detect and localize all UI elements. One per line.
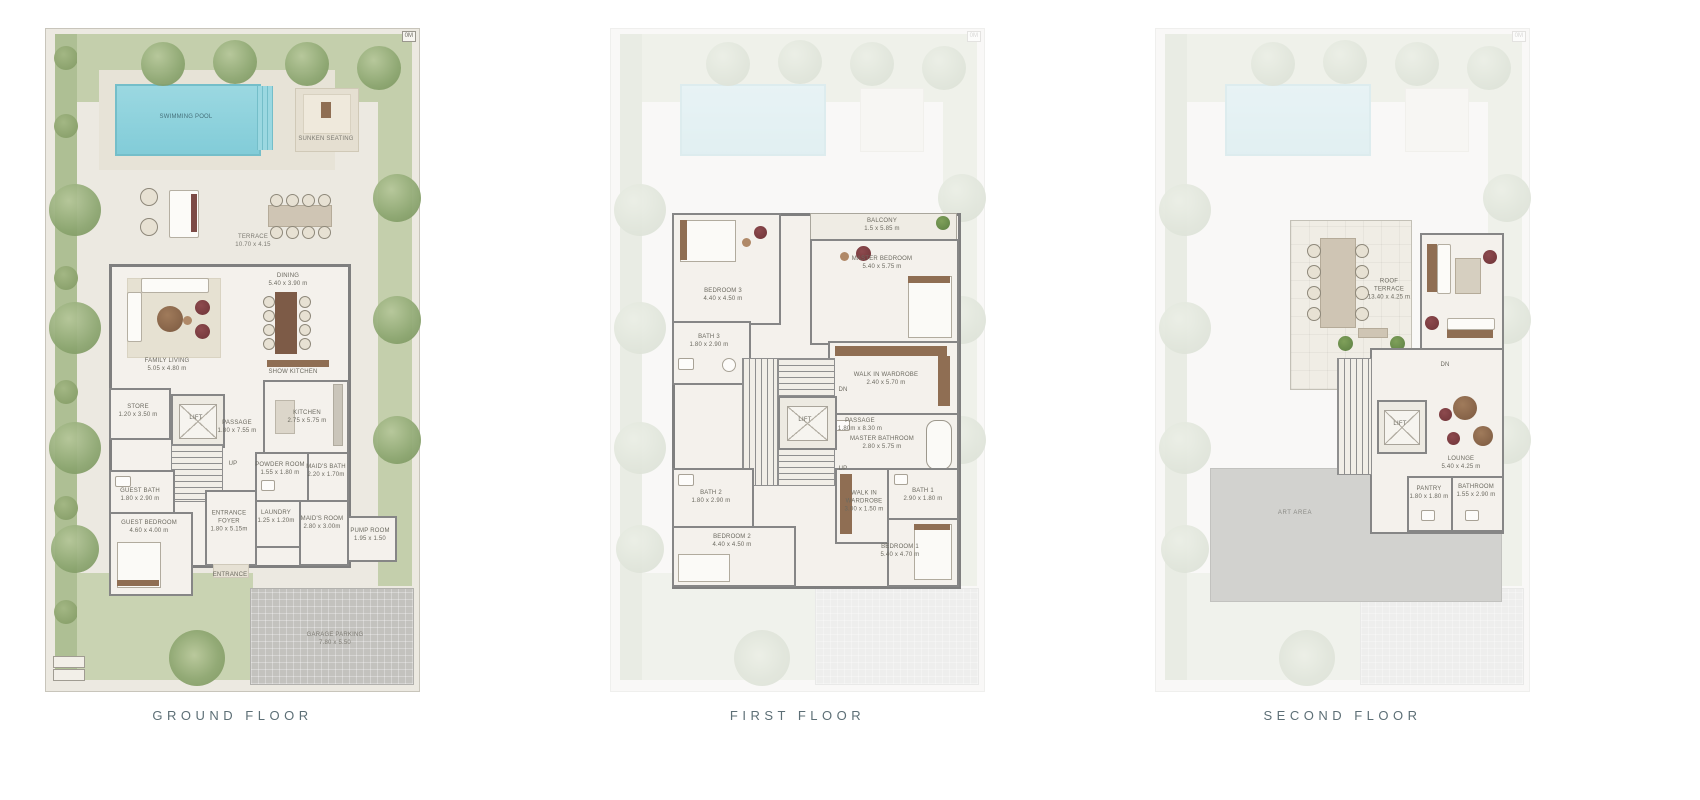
chair-icon: [263, 338, 275, 350]
up-label: UP: [229, 461, 238, 469]
tree-icon: [778, 40, 822, 84]
dining-label: DINING5.40 x 3.90 m: [269, 273, 308, 289]
terrace-table-icon: [268, 205, 332, 227]
garage-area: [1360, 588, 1524, 685]
chair-icon: [1355, 307, 1369, 321]
lift-label: LIFT: [1393, 421, 1406, 429]
garage-area: [815, 588, 979, 685]
fixture-icon: [261, 480, 275, 491]
stairs-icon: [778, 448, 835, 486]
garage-label: GARAGE PARKING7.80 x 5.50: [307, 632, 364, 648]
sofa-cushion-icon: [191, 194, 197, 232]
chair-icon: [1355, 265, 1369, 279]
chair-icon: [1307, 286, 1321, 300]
lift-label: LIFT: [189, 415, 202, 423]
palm-tree-icon: [1279, 630, 1335, 686]
tree-icon: [850, 42, 894, 86]
armchair-icon: [754, 226, 767, 239]
firepit-icon: [321, 102, 331, 118]
hedge-left: [1165, 34, 1187, 680]
tree-icon: [373, 416, 421, 464]
powder-room-label: POWDER ROOM1.55 x 1.80 m: [255, 462, 305, 478]
tree-icon: [1251, 42, 1295, 86]
chair-icon: [270, 194, 283, 207]
maids-room: [299, 500, 349, 566]
floor-plan-brochure: { "captions": { "ground": "GROUND FLOOR"…: [0, 0, 1700, 800]
tree-icon: [213, 40, 257, 84]
palm-tree-icon: [734, 630, 790, 686]
chair-icon: [286, 194, 299, 207]
tree-icon: [1395, 42, 1439, 86]
tree-icon: [614, 422, 666, 474]
sunken-seating: [860, 88, 924, 152]
tree-icon: [141, 42, 185, 86]
stairs-icon: [742, 358, 778, 486]
chair-icon: [318, 226, 331, 239]
round-table-icon: [1453, 396, 1477, 420]
coffee-table-icon: [1455, 258, 1481, 294]
bush-icon: [54, 496, 78, 520]
tree-icon: [616, 525, 664, 573]
lawn-bottom: [642, 573, 818, 680]
art-area-label: ART AREA: [1278, 510, 1312, 518]
lounge-label: LOUNGE5.40 x 4.25 m: [1442, 456, 1481, 472]
armchair-icon: [1439, 408, 1452, 421]
tree-icon: [1159, 184, 1211, 236]
headboard-icon: [117, 580, 159, 586]
chair-icon: [1355, 244, 1369, 258]
headboard-icon: [908, 276, 950, 283]
palm-tree-icon: [169, 630, 225, 686]
bush-icon: [54, 600, 78, 624]
stool-icon: [742, 238, 751, 247]
dn-label: DN: [838, 387, 847, 395]
tree-icon: [49, 422, 101, 474]
entrance-foyer-label: ENTRANCE FOYER1.80 x 5.15m: [205, 510, 253, 533]
sunken-seating: [1405, 88, 1469, 152]
passage-label: PASSAGE1.80m x 8.30 m: [838, 418, 882, 434]
pump-room-label: PUMP ROOM1.95 x 1.50: [346, 528, 394, 544]
lounge-chair-icon: [140, 218, 158, 236]
pantry-room: [1407, 476, 1455, 532]
tree-icon: [51, 525, 99, 573]
chair-icon: [263, 310, 275, 322]
chair-icon: [263, 296, 275, 308]
armchair-icon: [1483, 250, 1497, 264]
master-bedroom-label: MASTER BEDROOM5.40 x 5.75 m: [852, 256, 912, 272]
chair-icon: [263, 324, 275, 336]
fixture-icon: [1421, 510, 1435, 521]
sofa-icon: [1447, 318, 1495, 330]
kitchen-label: KITCHEN2.75 x 5.75 m: [288, 410, 327, 426]
headboard-icon: [680, 220, 687, 260]
second-floor-caption: SECOND FLOOR: [1155, 708, 1530, 723]
tree-icon: [706, 42, 750, 86]
lounge-chair-icon: [140, 188, 158, 206]
headboard-icon: [914, 524, 950, 530]
tree-icon: [1159, 302, 1211, 354]
chair-icon: [270, 226, 283, 239]
bedroom1-label: BEDROOM 15.40 x 4.70 m: [876, 544, 924, 560]
walk-in-wardrobe1-label: WALK IN WARDROBE3.00 x 1.50 m: [840, 490, 888, 513]
tree-icon: [1323, 40, 1367, 84]
scale-bar: [53, 656, 85, 668]
bedroom2-label: BEDROOM 24.40 x 4.50 m: [713, 534, 752, 550]
chair-icon: [286, 226, 299, 239]
tree-icon: [1467, 46, 1511, 90]
wardrobe-icon: [938, 356, 950, 406]
armchair-icon: [1425, 316, 1439, 330]
tree-icon: [1483, 174, 1531, 222]
stairs-icon: [1337, 358, 1372, 475]
tree-icon: [614, 302, 666, 354]
chair-icon: [299, 324, 311, 336]
dining-table-icon: [275, 292, 297, 354]
armchair-icon: [1447, 432, 1460, 445]
scale-marker: 0M: [1512, 31, 1526, 42]
passage-label: PASSAGE1.80 x 7.55 m: [218, 420, 257, 436]
ground-floor-plan: SWIMMING POOL SUNKEN SEATING TERRACE10.7: [45, 28, 420, 692]
bed-icon: [678, 554, 730, 582]
maids-room-label: MAID'S ROOM2.80 x 3.00m: [298, 516, 346, 532]
bathroom-label: BATHROOM1.55 x 2.90 m: [1457, 484, 1496, 500]
chair-icon: [299, 338, 311, 350]
tree-icon: [922, 46, 966, 90]
chair-icon: [299, 296, 311, 308]
armchair-icon: [195, 300, 210, 315]
coffee-table-icon: [157, 306, 183, 332]
tree-icon: [1161, 525, 1209, 573]
sofa-icon: [127, 292, 142, 342]
first-floor-plan: 0M BEDROOM 34.40 x 4.50 m BALCONY1.5 x 5…: [610, 28, 985, 692]
tree-icon: [49, 184, 101, 236]
second-floor-plan: 0M ART AREA ROOF TERRACE13.40 x 4.25 m: [1155, 28, 1530, 692]
round-table-icon: [1473, 426, 1493, 446]
pool-steps: [257, 86, 273, 150]
armchair-icon: [195, 324, 210, 339]
stool-icon: [840, 252, 849, 261]
chair-icon: [1307, 307, 1321, 321]
chair-icon: [302, 226, 315, 239]
show-kitchen-counter-icon: [267, 360, 329, 367]
balcony-label: BALCONY1.5 x 5.85 m: [864, 218, 899, 234]
bath2-label: BATH 21.80 x 2.90 m: [692, 490, 731, 506]
chair-icon: [1307, 265, 1321, 279]
bath1-label: BATH 12.90 x 1.80 m: [904, 488, 943, 504]
bush-icon: [54, 46, 78, 70]
scale-bar: [53, 669, 85, 681]
walk-in-wardrobe-label: WALK IN WARDROBE2.40 x 5.70 m: [854, 372, 918, 388]
scale-marker: 0M: [402, 31, 416, 42]
laundry-label: LAUNDRY1.25 x 1.20m: [257, 510, 294, 526]
tree-icon: [49, 302, 101, 354]
terrace-label: TERRACE10.70 x 4.15: [235, 234, 270, 250]
wardrobe-icon: [835, 346, 947, 356]
ground-floor-caption: GROUND FLOOR: [45, 708, 420, 723]
stool-icon: [183, 316, 192, 325]
family-living-label: FAMILY LIVING5.05 x 4.80 m: [145, 358, 190, 374]
tree-icon: [285, 42, 329, 86]
pool-label: SWIMMING POOL: [160, 114, 213, 122]
fixture-icon: [115, 476, 131, 487]
dn-label: DN: [1440, 362, 1449, 370]
bed-icon: [908, 276, 952, 338]
swimming-pool: [1225, 84, 1371, 156]
tree-icon: [373, 296, 421, 344]
bath3-room: [672, 321, 751, 385]
swimming-pool: [680, 84, 826, 156]
kitchen-counter-icon: [333, 384, 343, 446]
entrance-label: ENTRANCE: [213, 572, 248, 580]
pantry-label: PANTRY1.80 x 1.80 m: [1410, 486, 1449, 502]
bench-icon: [1358, 328, 1388, 338]
scale-marker: 0M: [967, 31, 981, 42]
stairs-icon: [778, 358, 835, 396]
fixture-icon: [678, 358, 694, 370]
fixture-icon: [1465, 510, 1479, 521]
guest-bedroom-label: GUEST BEDROOM4.60 x 4.00 m: [121, 520, 177, 536]
plant-icon: [936, 216, 950, 230]
bedroom3-label: BEDROOM 34.40 x 4.50 m: [704, 288, 743, 304]
sunken-seating-label: SUNKEN SEATING: [298, 136, 353, 144]
show-kitchen-label: SHOW KITCHEN: [268, 369, 317, 377]
fixture-icon: [678, 474, 694, 486]
bathtub-icon: [926, 420, 952, 470]
tree-icon: [1159, 422, 1211, 474]
chair-icon: [299, 310, 311, 322]
bed-icon: [680, 220, 736, 262]
store-label: STORE1.20 x 3.50 m: [119, 404, 158, 420]
chair-icon: [302, 194, 315, 207]
chair-icon: [1307, 244, 1321, 258]
hedge-left: [620, 34, 642, 680]
guest-bath-label: GUEST BATH1.80 x 2.90 m: [120, 488, 160, 504]
bush-icon: [54, 380, 78, 404]
sofa-back-icon: [1427, 244, 1437, 292]
lift-label: LIFT: [798, 417, 811, 425]
roof-terrace-label: ROOF TERRACE13.40 x 4.25 m: [1365, 278, 1413, 301]
tree-icon: [357, 46, 401, 90]
sofa-icon: [141, 278, 209, 293]
maids-bath-label: MAID'S BATH2.20 x 1.70m: [306, 464, 346, 480]
first-floor-caption: FIRST FLOOR: [610, 708, 985, 723]
master-bathroom-label: MASTER BATHROOM2.80 x 5.75 m: [850, 436, 914, 452]
plant-icon: [1338, 336, 1353, 351]
tree-icon: [373, 174, 421, 222]
fixture-icon: [722, 358, 736, 372]
chair-icon: [318, 194, 331, 207]
sofa-icon: [1437, 244, 1451, 294]
up-label: UP: [839, 466, 848, 474]
bush-icon: [54, 266, 78, 290]
fixture-icon: [894, 474, 908, 485]
bush-icon: [54, 114, 78, 138]
tree-icon: [614, 184, 666, 236]
bath3-label: BATH 31.80 x 2.90 m: [690, 334, 729, 350]
terrace-table-icon: [1320, 238, 1356, 328]
